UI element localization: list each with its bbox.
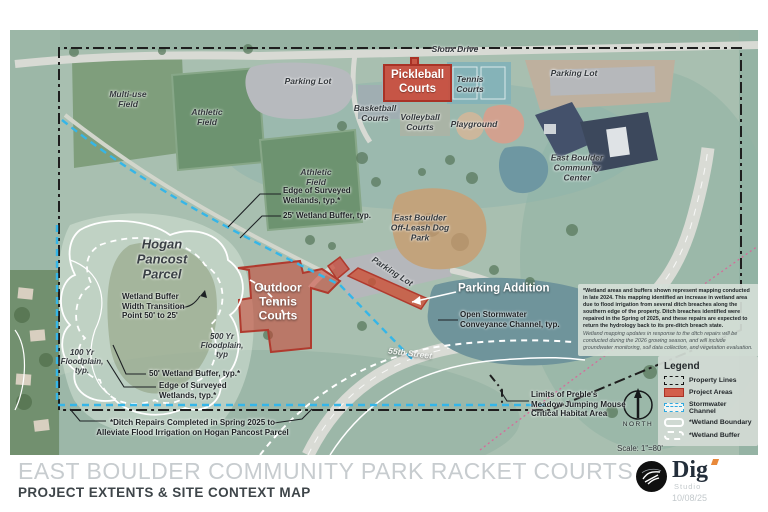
legend-title: Legend <box>664 361 752 372</box>
annot-50ft-buffer: 50' Wetland Buffer, typ.* <box>149 369 240 379</box>
logo-wordmark: Dig <box>672 457 708 484</box>
boulder-seal-icon <box>636 461 667 492</box>
legend-item-property-lines: Property Lines <box>664 376 752 385</box>
label-basketball-courts: Basketball Courts <box>354 104 397 124</box>
nw-parking-shape <box>245 63 353 119</box>
label-tennis-courts: Tennis Courts <box>456 75 483 95</box>
legend-item-stormwater-channel: Stormwater Channel <box>664 401 752 415</box>
north-indicator: NORTH <box>616 386 660 428</box>
property-lines-swatch <box>664 376 684 385</box>
label-multiuse-field: Multi-use Field <box>109 90 146 110</box>
north-label: NORTH <box>616 421 660 428</box>
annot-100yr-floodplain: 100 Yr Floodplain, typ. <box>61 348 104 376</box>
label-athletic-field-2: Athletic Field <box>300 168 331 188</box>
center-pond <box>499 146 548 193</box>
legend-label: Project Areas <box>689 389 733 396</box>
legend-label: *Wetland Buffer <box>689 432 740 439</box>
dig-studio-logo: Dig Studio 10/08/25 <box>636 457 756 509</box>
sheet-date: 10/08/25 <box>672 493 707 503</box>
label-community-center: East Boulder Community Center <box>551 153 603 182</box>
annot-ditch-repairs-note: *Ditch Repairs Completed in Spring 2025 … <box>80 418 305 438</box>
wetland-note-box: *Wetland areas and buffers shown represe… <box>578 284 758 356</box>
sheet-title: EAST BOULDER COMMUNITY PARK RACKET COURT… <box>18 458 633 485</box>
annot-transition-point: Wetland Buffer Width Transition Point 50… <box>122 292 185 321</box>
annot-25ft-buffer: 25' Wetland Buffer, typ. <box>283 211 371 221</box>
label-dog-park: East Boulder Off-Leash Dog Park <box>391 213 449 242</box>
pickleball-courts-callout: Pickleball Courts <box>383 64 452 102</box>
title-block: EAST BOULDER COMMUNITY PARK RACKET COURT… <box>0 455 768 512</box>
label-playground: Playground <box>451 120 498 130</box>
label-hogan-pancost: Hogan Pancost Parcel <box>137 238 188 283</box>
sheet-subtitle: PROJECT EXTENTS & SITE CONTEXT MAP <box>18 485 311 500</box>
multiuse-field-shape <box>72 56 186 168</box>
label-volleyball-courts: Volleyball Courts <box>400 113 439 133</box>
annot-preble-habitat: Limits of Preble's Meadow Jumping Mouse … <box>531 390 626 419</box>
legend-item-wetland-boundary: *Wetland Boundary <box>664 418 752 427</box>
annot-500yr-floodplain: 500 Yr Floodplain, typ <box>201 332 244 360</box>
wetland-note-bold: *Wetland areas and buffers shown represe… <box>583 288 754 330</box>
label-outdoor-tennis-courts: Outdoor Tennis Courts <box>254 281 301 322</box>
label-athletic-field-1: Athletic Field <box>191 108 222 128</box>
logo-sub-label: Studio <box>674 482 701 491</box>
legend-label: Property Lines <box>689 377 737 384</box>
label-parking-lot-nw: Parking Lot <box>285 77 332 87</box>
wetland-buffer-swatch <box>664 431 684 440</box>
project-areas-swatch <box>664 388 684 397</box>
logo-accent-mark <box>711 459 719 465</box>
annot-edge-wetlands-south: Edge of Surveyed Wetlands, typ.* <box>159 381 227 400</box>
scale-label: Scale: 1"=80' <box>585 444 695 453</box>
annot-edge-wetlands-north: Edge of Surveyed Wetlands, typ.* <box>283 186 351 205</box>
wetland-note-italic: Wetland mapping updates in response to t… <box>583 331 754 352</box>
label-parking-lot-ne: Parking Lot <box>551 69 598 79</box>
legend-label: *Wetland Boundary <box>689 419 752 426</box>
legend: Legend Property Lines Project Areas Stor… <box>658 356 758 446</box>
site-context-map: Sioux Drive Parking Lot Parking Lot Tenn… <box>10 30 758 455</box>
label-sioux-drive: Sioux Drive <box>432 45 479 55</box>
legend-item-project-areas: Project Areas <box>664 388 752 397</box>
label-parking-addition: Parking Addition <box>458 282 550 295</box>
plan-sheet: Sioux Drive Parking Lot Parking Lot Tenn… <box>0 0 768 512</box>
annot-open-stormwater: Open Stormwater Conveyance Channel, typ. <box>460 310 560 329</box>
legend-item-wetland-buffer: *Wetland Buffer <box>664 431 752 440</box>
legend-label: Stormwater Channel <box>689 401 752 415</box>
stormwater-channel-swatch <box>664 403 684 412</box>
wetland-boundary-swatch <box>664 418 684 427</box>
